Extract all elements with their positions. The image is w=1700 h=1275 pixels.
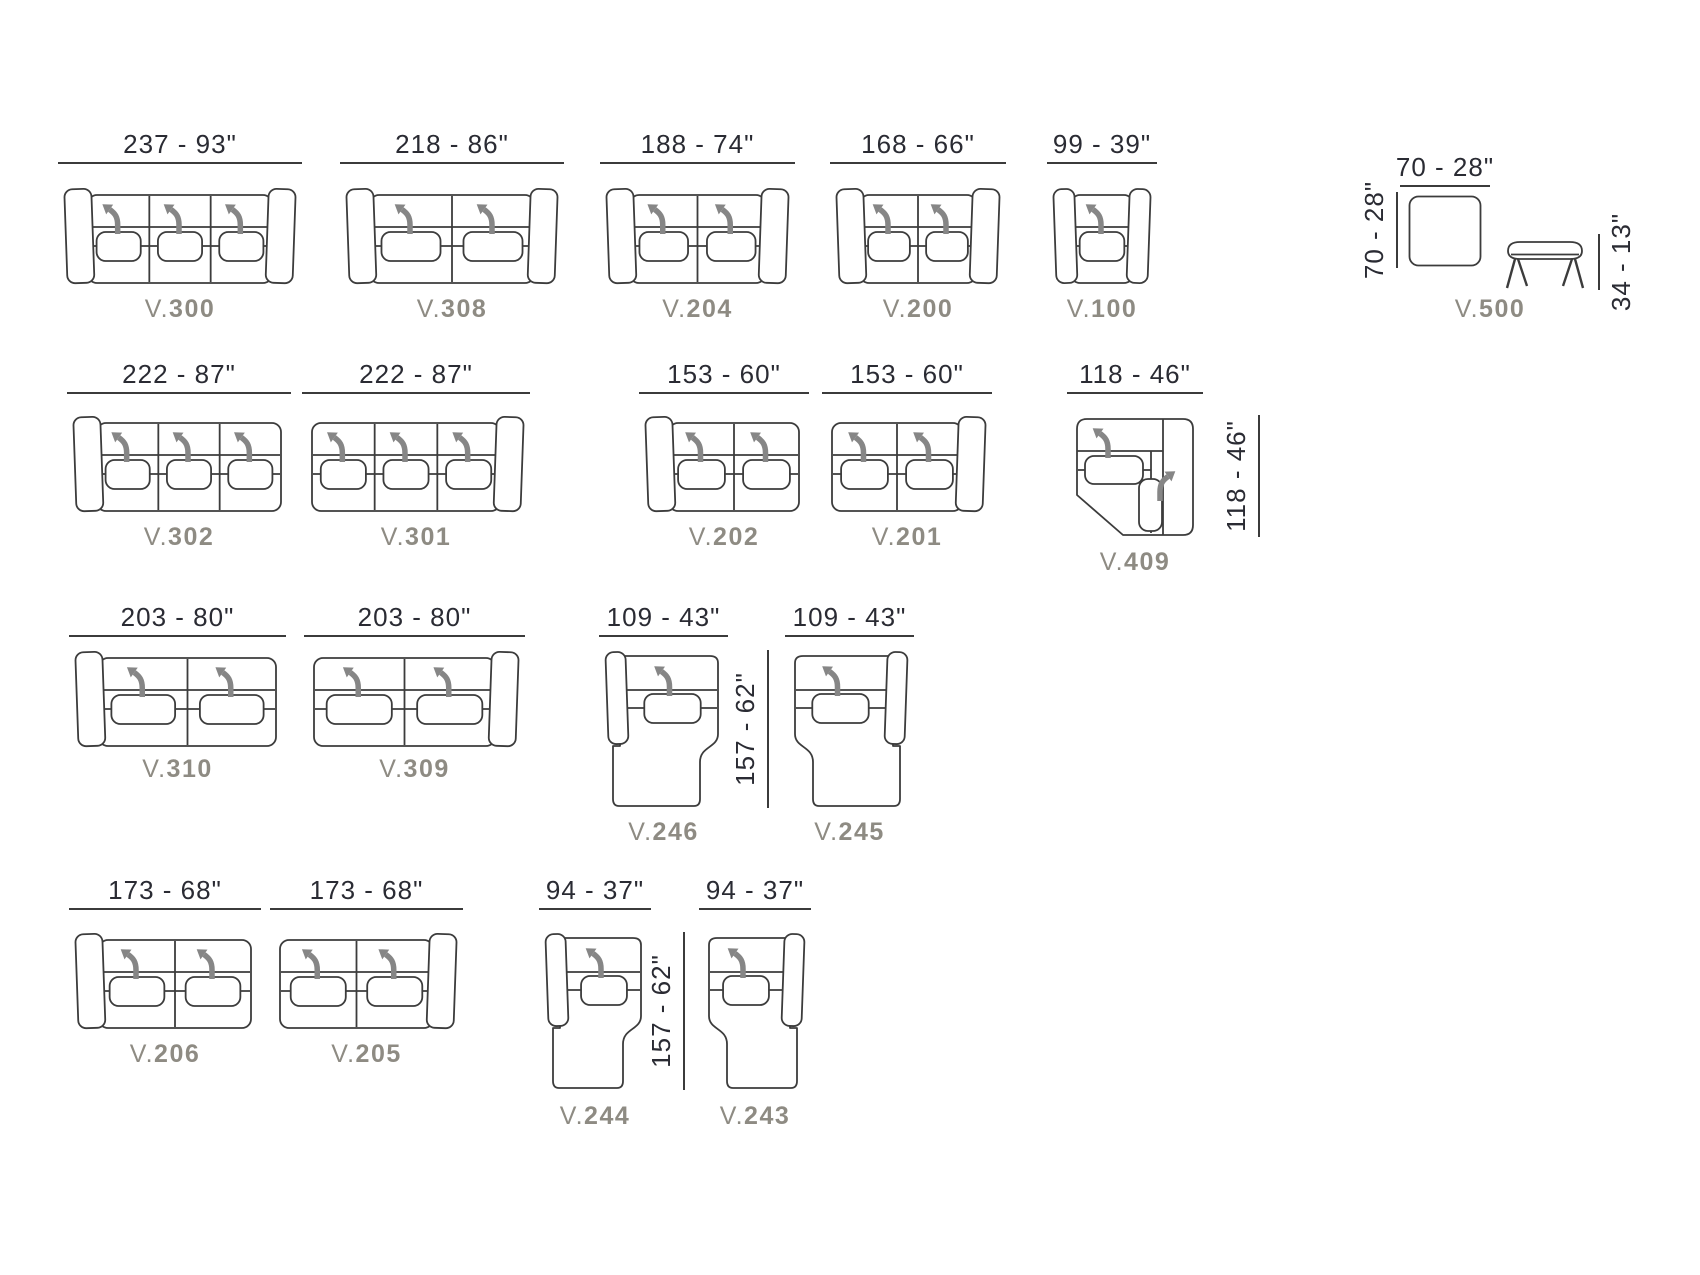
armrest <box>970 189 1000 284</box>
width-dimension-v244: 94 - 37" <box>539 872 651 910</box>
armrest <box>1127 189 1151 284</box>
sofa-top-view <box>77 932 253 1030</box>
dimension-rule <box>830 162 1006 164</box>
width-dimension-v205: 173 - 68" <box>270 872 463 910</box>
sofa-top-view <box>1055 187 1149 285</box>
lumbar-pillow <box>200 695 264 724</box>
model-code-v201: V.201 <box>827 523 987 552</box>
width-dimension-v302: 222 - 87" <box>67 356 291 394</box>
model-code-prefix: V. <box>331 1040 355 1068</box>
model-code-prefix: V. <box>814 818 838 846</box>
model-code-v300: V.300 <box>100 295 260 324</box>
sofa-top-view <box>75 415 283 513</box>
lumbar-pillow <box>291 977 346 1006</box>
model-code-v500: V.500 <box>1410 295 1570 324</box>
ottoman-body <box>1410 197 1481 266</box>
chaise-top-view <box>707 932 803 1090</box>
armrest <box>528 189 558 284</box>
dimension-rule <box>1400 185 1490 187</box>
armrest <box>645 417 675 512</box>
lumbar-pillow <box>1085 456 1143 484</box>
sofa-top-view <box>608 187 787 285</box>
sofa-top-view <box>647 415 801 513</box>
model-code-prefix: V. <box>379 755 403 783</box>
model-code-number: 244 <box>584 1102 630 1130</box>
dimension-rule <box>785 635 914 637</box>
lumbar-pillow <box>228 460 272 489</box>
armrest <box>759 189 789 284</box>
width-dimension-v200: 168 - 66" <box>830 126 1006 164</box>
armrest <box>956 417 986 512</box>
dimension-text: 173 - 68" <box>108 876 222 905</box>
model-code-number: 301 <box>405 523 451 551</box>
lumbar-pillow <box>383 460 428 489</box>
dimension-rule <box>1067 392 1203 394</box>
armrest <box>605 652 628 745</box>
model-code-prefix: V. <box>142 755 166 783</box>
dimension-rule <box>69 908 261 910</box>
model-code-prefix: V. <box>1067 295 1091 323</box>
lumbar-pillow <box>446 460 491 489</box>
model-code-prefix: V. <box>883 295 907 323</box>
armrest <box>346 189 376 284</box>
dimension-text: 109 - 43" <box>607 603 721 632</box>
model-code-number: 308 <box>441 295 487 323</box>
lumbar-pillow <box>639 232 688 261</box>
armrest <box>781 934 804 1027</box>
chaise-top-view <box>547 932 643 1090</box>
lumbar-pillow <box>417 695 482 724</box>
dimension-text: 109 - 43" <box>793 603 907 632</box>
dimension-rule <box>1258 415 1260 537</box>
armrest <box>606 189 636 284</box>
width-dimension-v243: 94 - 37" <box>699 872 811 910</box>
sofa-top-view <box>278 932 455 1030</box>
lumbar-pillow <box>841 460 888 489</box>
model-code-v310: V.310 <box>98 755 258 784</box>
lumbar-pillow <box>106 460 150 489</box>
model-code-v308: V.308 <box>372 295 532 324</box>
dimension-rule <box>270 908 463 910</box>
dimension-rule <box>600 162 795 164</box>
dimension-rule <box>699 908 811 910</box>
armrest <box>64 189 94 284</box>
lumbar-pillow <box>723 976 769 1005</box>
model-code-number: 202 <box>713 523 759 551</box>
width-dimension-v310: 203 - 80" <box>69 599 286 637</box>
model-code-v202: V.202 <box>644 523 804 552</box>
armrest <box>266 189 296 284</box>
chaise-top-view <box>793 650 906 808</box>
lumbar-pillow <box>812 694 868 723</box>
model-code-prefix: V. <box>381 523 405 551</box>
dimension-text: 70 - 28" <box>1359 181 1390 279</box>
model-code-v204: V.204 <box>618 295 778 324</box>
width-dimension-v201: 153 - 60" <box>822 356 992 394</box>
dimension-text: 222 - 87" <box>122 360 236 389</box>
dimension-rule <box>1598 234 1600 290</box>
model-code-number: 206 <box>154 1040 200 1068</box>
dimension-rule <box>539 908 651 910</box>
model-code-number: 243 <box>744 1102 790 1130</box>
model-code-number: 500 <box>1479 295 1525 323</box>
dimension-rule <box>1047 162 1157 164</box>
dimension-text: 203 - 80" <box>358 603 472 632</box>
sofa-top-view <box>348 187 556 285</box>
model-code-number: 409 <box>1124 548 1170 576</box>
dimension-rule <box>683 932 685 1090</box>
sofa-top-view <box>66 187 294 285</box>
ottoman-depth-dimension: 70 - 28" <box>1358 192 1398 268</box>
model-code-v243: V.243 <box>675 1102 835 1131</box>
model-code-v409: V.409 <box>1055 548 1215 577</box>
dimension-text: 157 - 62" <box>646 954 677 1068</box>
dimension-rule <box>639 392 809 394</box>
model-code-prefix: V. <box>628 818 652 846</box>
dimension-rule <box>58 162 302 164</box>
dimension-text: 168 - 66" <box>861 130 975 159</box>
model-code-prefix: V. <box>662 295 686 323</box>
model-code-prefix: V. <box>130 1040 154 1068</box>
model-code-number: 204 <box>687 295 733 323</box>
lumbar-pillow <box>868 232 910 261</box>
lumbar-pillow <box>158 232 202 261</box>
armrest <box>75 652 105 747</box>
dimension-text: 153 - 60" <box>850 360 964 389</box>
chaise-top-view <box>607 650 720 808</box>
model-code-prefix: V. <box>872 523 896 551</box>
model-code-v309: V.309 <box>335 755 495 784</box>
dimension-text: 157 - 62" <box>730 672 761 786</box>
dimension-text: 118 - 46" <box>1221 420 1252 532</box>
model-code-prefix: V. <box>1100 548 1124 576</box>
dimension-rule <box>67 392 291 394</box>
model-code-prefix: V. <box>417 295 441 323</box>
sofa-top-view <box>830 415 984 513</box>
lumbar-pillow <box>381 232 440 261</box>
dimension-text: 94 - 37" <box>546 876 644 905</box>
lumbar-pillow <box>97 232 141 261</box>
lumbar-pillow <box>327 695 392 724</box>
dimension-text: 218 - 86" <box>395 130 509 159</box>
model-code-prefix: V. <box>1455 295 1479 323</box>
model-code-v205: V.205 <box>287 1040 447 1069</box>
dimension-text: 188 - 74" <box>641 130 755 159</box>
armrest <box>884 652 907 745</box>
sofa-spec-sheet: 237 - 93"V.300218 - 86"V.308188 - 74"V.2… <box>0 0 1700 1275</box>
width-dimension-v204: 188 - 74" <box>600 126 795 164</box>
width-dimension-v100: 99 - 39" <box>1047 126 1157 164</box>
model-code-number: 245 <box>839 818 885 846</box>
model-code-number: 100 <box>1091 295 1137 323</box>
lumbar-pillow <box>926 232 968 261</box>
dimension-rule <box>302 392 530 394</box>
width-dimension-v309: 203 - 80" <box>304 599 525 637</box>
dimension-text: 70 - 28" <box>1396 153 1494 182</box>
model-code-prefix: V. <box>144 523 168 551</box>
dimension-text: 222 - 87" <box>359 360 473 389</box>
dimension-text: 153 - 60" <box>667 360 781 389</box>
model-code-v302: V.302 <box>99 523 259 552</box>
lumbar-pillow <box>581 976 627 1005</box>
bench-side-view <box>1504 240 1586 290</box>
dimension-text: 118 - 46" <box>1079 360 1191 389</box>
armrest <box>489 652 519 747</box>
sofa-top-view <box>312 650 517 748</box>
model-code-number: 302 <box>168 523 214 551</box>
model-code-v246: V.246 <box>584 818 744 847</box>
lumbar-pillow <box>110 977 165 1006</box>
lumbar-pillow <box>219 232 263 261</box>
dimension-text: 173 - 68" <box>310 876 424 905</box>
lumbar-pillow <box>1080 232 1125 261</box>
lumbar-pillow <box>111 695 175 724</box>
lumbar-pillow <box>463 232 522 261</box>
width-dimension-v246: 109 - 43" <box>599 599 728 637</box>
width-dimension-v245: 109 - 43" <box>785 599 914 637</box>
corner-depth-dimension: 118 - 46" <box>1220 415 1260 537</box>
model-code-number: 201 <box>896 523 942 551</box>
bench-height-dimension: 34 - 13" <box>1598 234 1638 290</box>
armrest <box>73 417 103 512</box>
model-code-v206: V.206 <box>85 1040 245 1069</box>
model-code-v200: V.200 <box>838 295 998 324</box>
dimension-rule <box>822 392 992 394</box>
model-code-prefix: V. <box>560 1102 584 1130</box>
dimension-rule <box>304 635 525 637</box>
dimension-rule <box>1396 192 1398 268</box>
width-dimension-v300: 237 - 93" <box>58 126 302 164</box>
model-code-prefix: V. <box>720 1102 744 1130</box>
dimension-rule <box>599 635 728 637</box>
width-dimension-v202: 153 - 60" <box>639 356 809 394</box>
armrest <box>836 189 866 284</box>
model-code-v301: V.301 <box>336 523 496 552</box>
ottoman-width-dimension: 70 - 28" <box>1400 149 1490 187</box>
model-code-number: 205 <box>356 1040 402 1068</box>
lumbar-pillow <box>906 460 953 489</box>
model-code-prefix: V. <box>689 523 713 551</box>
sofa-top-view <box>77 650 278 748</box>
sofa-top-view <box>310 415 522 513</box>
corner-top-view <box>1075 415 1195 537</box>
lumbar-pillow <box>167 460 211 489</box>
model-code-number: 246 <box>653 818 699 846</box>
dimension-text: 203 - 80" <box>121 603 235 632</box>
model-code-v244: V.244 <box>515 1102 675 1131</box>
dimension-text: 34 - 13" <box>1606 213 1637 311</box>
model-code-v100: V.100 <box>1022 295 1182 324</box>
sofa-top-view <box>838 187 998 285</box>
lumbar-pillow <box>321 460 366 489</box>
ottoman-top-view <box>1408 195 1482 267</box>
lumbar-pillow <box>186 977 241 1006</box>
model-code-number: 200 <box>907 295 953 323</box>
dimension-rule <box>69 635 286 637</box>
armrest <box>545 934 568 1027</box>
width-dimension-v301: 222 - 87" <box>302 356 530 394</box>
model-code-number: 300 <box>169 295 215 323</box>
dimension-text: 237 - 93" <box>123 130 237 159</box>
width-dimension-v409: 118 - 46" <box>1067 356 1203 394</box>
armrest <box>494 417 524 512</box>
lumbar-pillow <box>367 977 422 1006</box>
lumbar-pillow <box>644 694 700 723</box>
lumbar-pillow <box>743 460 790 489</box>
width-dimension-v308: 218 - 86" <box>340 126 564 164</box>
armrest <box>75 934 105 1029</box>
chaise-depth-dimension-row4: 157 - 62" <box>645 932 685 1090</box>
width-dimension-v206: 173 - 68" <box>69 872 261 910</box>
dimension-rule <box>767 650 769 808</box>
dimension-text: 99 - 39" <box>1053 130 1151 159</box>
armrest <box>427 934 457 1029</box>
model-code-number: 310 <box>167 755 213 783</box>
chaise-depth-dimension-row3: 157 - 62" <box>729 650 769 808</box>
model-code-prefix: V. <box>145 295 169 323</box>
dimension-rule <box>340 162 564 164</box>
bench-cushion <box>1508 242 1582 259</box>
armrest <box>1053 189 1077 284</box>
dimension-text: 94 - 37" <box>706 876 804 905</box>
model-code-v245: V.245 <box>770 818 930 847</box>
model-code-number: 309 <box>404 755 450 783</box>
lumbar-pillow <box>707 232 756 261</box>
lumbar-pillow <box>678 460 725 489</box>
